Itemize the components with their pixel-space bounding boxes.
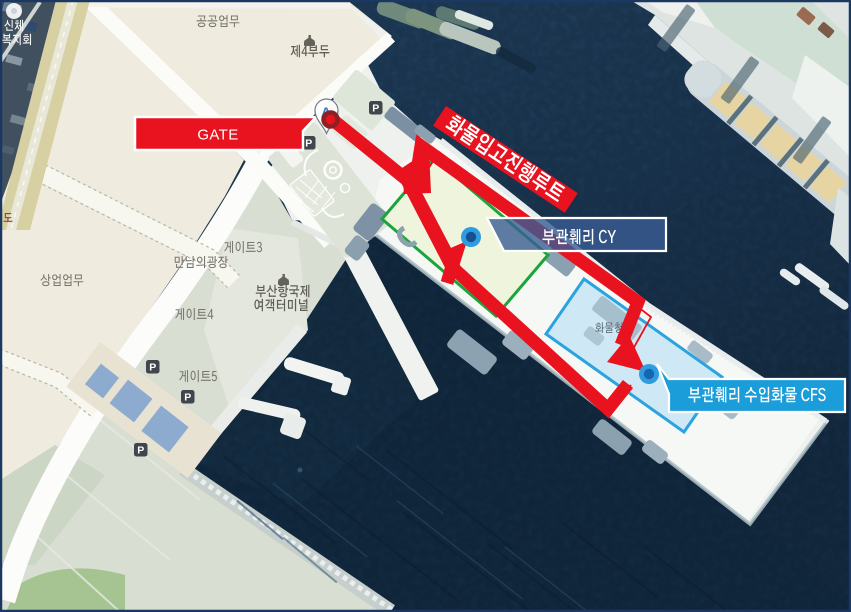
svg-text:P: P — [149, 362, 156, 374]
svg-text:P: P — [372, 103, 379, 115]
svg-text:P: P — [137, 445, 144, 457]
svg-text:P: P — [305, 138, 312, 150]
svg-text:P: P — [184, 392, 191, 404]
svg-text:GATE: GATE — [197, 127, 238, 144]
